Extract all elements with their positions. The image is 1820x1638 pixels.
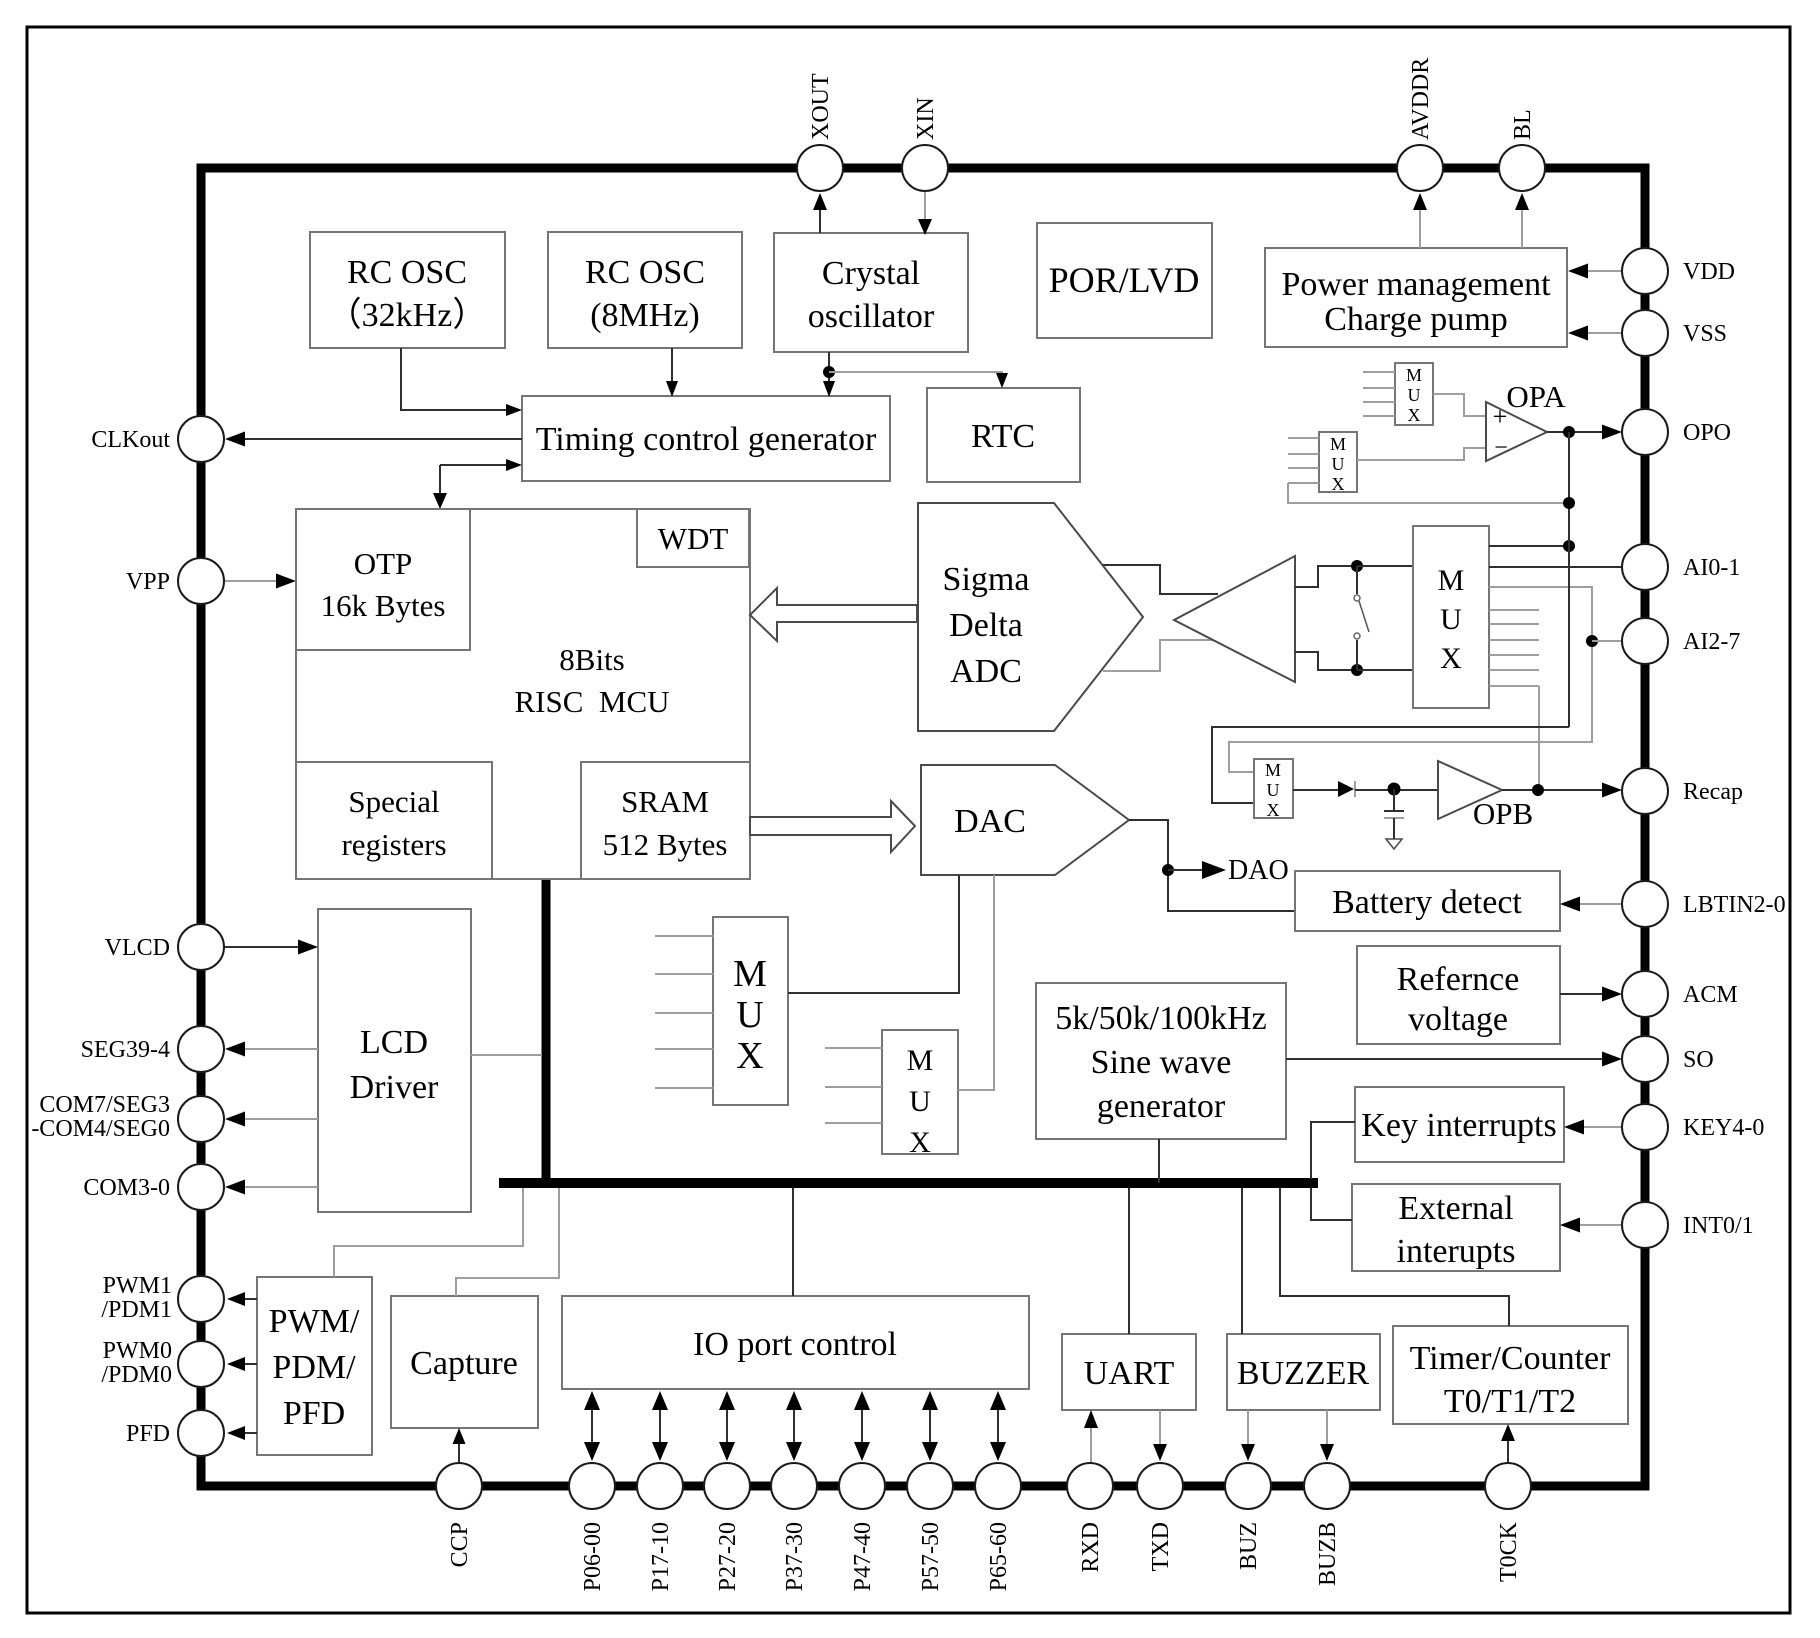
svg-text:M: M (733, 953, 767, 995)
svg-text:RXD: RXD (1078, 1522, 1104, 1573)
svg-text:SO: SO (1683, 1047, 1714, 1073)
svg-text:CCP: CCP (447, 1522, 473, 1567)
svg-text:OPO: OPO (1683, 420, 1731, 446)
svg-text:P06-00: P06-00 (580, 1522, 606, 1591)
svg-text:+: + (1493, 402, 1508, 431)
svg-text:P65-60: P65-60 (986, 1522, 1012, 1591)
svg-text:U: U (909, 1085, 931, 1118)
svg-text:Driver: Driver (350, 1069, 439, 1106)
svg-text:OPB: OPB (1473, 796, 1533, 831)
svg-text:/PDM0: /PDM0 (101, 1362, 172, 1388)
svg-text:T0CK: T0CK (1496, 1521, 1522, 1582)
svg-text:X: X (1332, 474, 1345, 494)
svg-text:Battery detect: Battery detect (1332, 884, 1522, 921)
svg-text:OTP: OTP (354, 546, 413, 581)
svg-text:generator: generator (1097, 1088, 1226, 1125)
svg-text:Refernce: Refernce (1397, 961, 1520, 998)
svg-text:registers: registers (341, 827, 446, 862)
svg-text:RC OSC: RC OSC (347, 254, 467, 291)
svg-text:Recap: Recap (1683, 779, 1743, 805)
svg-text:BUZ: BUZ (1236, 1522, 1262, 1570)
svg-text:Crystal: Crystal (822, 255, 920, 292)
svg-text:M: M (1330, 434, 1346, 454)
svg-text:VSS: VSS (1683, 321, 1727, 347)
svg-text:5k/50k/100kHz: 5k/50k/100kHz (1055, 1000, 1267, 1037)
svg-text:BL: BL (1510, 109, 1536, 140)
svg-text:KEY4-0: KEY4-0 (1683, 1115, 1764, 1141)
svg-text:/PDM1: /PDM1 (101, 1297, 172, 1323)
svg-text:POR/LVD: POR/LVD (1049, 260, 1200, 300)
svg-text:X: X (1408, 405, 1421, 425)
svg-text:P17-10: P17-10 (648, 1522, 674, 1591)
svg-text:Capture: Capture (410, 1345, 518, 1382)
svg-text:RC OSC: RC OSC (585, 254, 705, 291)
svg-text:U: U (1267, 780, 1280, 800)
svg-text:X: X (736, 1035, 763, 1077)
svg-text:INT0/1: INT0/1 (1683, 1213, 1754, 1239)
svg-text:BUZB: BUZB (1315, 1522, 1341, 1586)
svg-text:8Bits: 8Bits (559, 642, 624, 677)
svg-text:XIN: XIN (913, 97, 939, 140)
svg-text:TXD: TXD (1148, 1522, 1174, 1571)
svg-text:External: External (1398, 1190, 1513, 1227)
svg-text:LBTIN2-0: LBTIN2-0 (1683, 892, 1786, 918)
svg-text:SEG39-4: SEG39-4 (81, 1037, 170, 1063)
svg-text:M: M (907, 1044, 934, 1077)
svg-text:ACM: ACM (1683, 982, 1738, 1008)
svg-text:voltage: voltage (1408, 1001, 1508, 1038)
svg-text:DAO: DAO (1228, 855, 1289, 886)
svg-text:P57-50: P57-50 (918, 1522, 944, 1591)
svg-text:IO port control: IO port control (693, 1326, 897, 1363)
svg-text:M: M (1438, 564, 1465, 597)
svg-text:512 Bytes: 512 Bytes (603, 827, 728, 862)
svg-text:X: X (1440, 642, 1462, 675)
svg-text:16k Bytes: 16k Bytes (321, 588, 446, 623)
svg-text:AI2-7: AI2-7 (1683, 629, 1740, 655)
svg-text:Charge pump: Charge pump (1324, 301, 1508, 338)
svg-text:M: M (1265, 760, 1281, 780)
svg-text:oscillator: oscillator (808, 298, 935, 335)
svg-text:PDM/: PDM/ (272, 1349, 356, 1386)
svg-text:VLCD: VLCD (105, 935, 170, 961)
svg-text:UART: UART (1084, 1355, 1175, 1392)
svg-text:X: X (909, 1126, 931, 1159)
svg-text:U: U (736, 994, 763, 1036)
svg-text:RTC: RTC (971, 418, 1035, 455)
svg-text:M: M (1406, 365, 1422, 385)
svg-text:BUZZER: BUZZER (1237, 1355, 1370, 1392)
svg-text:P47-40: P47-40 (850, 1522, 876, 1591)
svg-text:AVDDR: AVDDR (1408, 58, 1434, 140)
svg-text:Timing control generator: Timing control generator (536, 421, 877, 458)
svg-text:LCD: LCD (360, 1024, 428, 1061)
svg-text:P37-30: P37-30 (782, 1522, 808, 1591)
svg-text:PFD: PFD (126, 1421, 170, 1447)
svg-text:interupts: interupts (1397, 1233, 1516, 1270)
svg-text:Key interrupts: Key interrupts (1361, 1107, 1556, 1144)
svg-text:VDD: VDD (1683, 259, 1735, 285)
svg-text:PWM1: PWM1 (103, 1273, 172, 1299)
svg-text:PWM0: PWM0 (103, 1338, 172, 1364)
svg-text:Timer/Counter: Timer/Counter (1410, 1340, 1612, 1377)
svg-text:CLKout: CLKout (91, 427, 170, 453)
svg-text:PWM/: PWM/ (269, 1303, 360, 1340)
svg-text:（32kHz）: （32kHz） (328, 296, 487, 334)
svg-text:U: U (1408, 385, 1421, 405)
svg-text:ADC: ADC (950, 653, 1022, 690)
svg-text:PFD: PFD (283, 1395, 345, 1432)
svg-text:Special: Special (348, 784, 439, 819)
svg-text:RISC MCU: RISC MCU (514, 684, 669, 719)
svg-text:WDT: WDT (658, 521, 729, 556)
svg-text:P27-20: P27-20 (715, 1522, 741, 1591)
svg-text:AI0-1: AI0-1 (1683, 555, 1740, 581)
svg-text:U: U (1332, 454, 1345, 474)
svg-text:-COM4/SEG0: -COM4/SEG0 (31, 1116, 170, 1142)
svg-text:Power management: Power management (1281, 266, 1551, 303)
svg-text:DAC: DAC (954, 803, 1026, 840)
svg-text:COM7/SEG3: COM7/SEG3 (39, 1092, 170, 1118)
svg-text:X: X (1267, 800, 1280, 820)
svg-text:(8MHz): (8MHz) (590, 297, 700, 334)
svg-text:COM3-0: COM3-0 (83, 1175, 170, 1201)
svg-text:T0/T1/T2: T0/T1/T2 (1444, 1383, 1576, 1420)
svg-text:Sine wave: Sine wave (1091, 1044, 1232, 1081)
svg-text:XOUT: XOUT (808, 73, 834, 140)
svg-text:Sigma: Sigma (943, 561, 1030, 598)
svg-text:SRAM: SRAM (621, 784, 709, 819)
svg-text:Delta: Delta (949, 607, 1023, 644)
svg-text:U: U (1440, 603, 1462, 636)
svg-text:−: − (1494, 435, 1508, 461)
svg-text:VPP: VPP (126, 569, 170, 595)
svg-text:OPA: OPA (1506, 379, 1566, 414)
